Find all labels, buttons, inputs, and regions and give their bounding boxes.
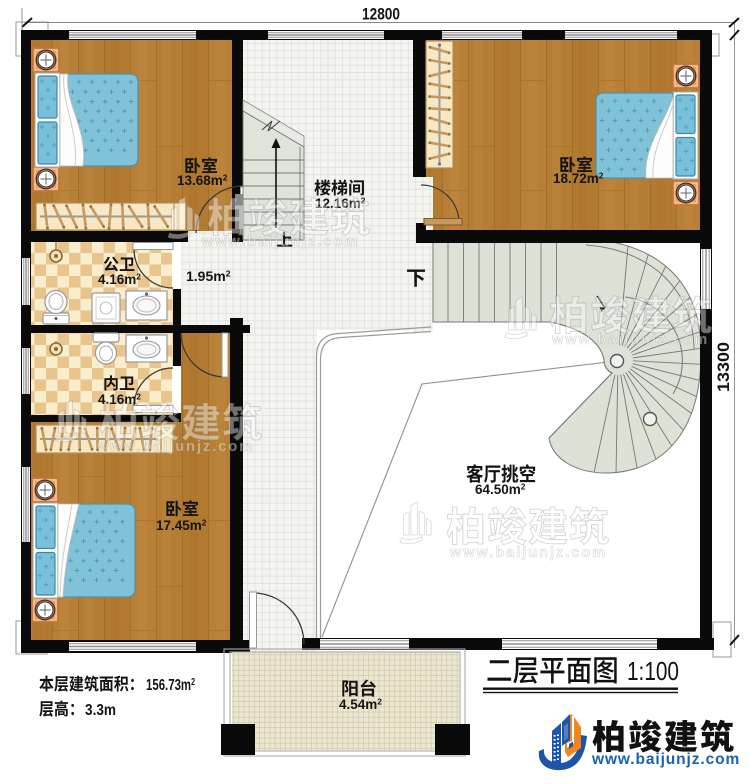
svg-text:4.16m2: 4.16m2 bbox=[98, 392, 141, 407]
svg-text:4.54m2: 4.54m2 bbox=[339, 697, 382, 712]
svg-text:17.45m2: 17.45m2 bbox=[156, 518, 207, 533]
svg-text:www.baijunjz.com: www.baijunjz.com bbox=[591, 751, 740, 768]
svg-text:13300: 13300 bbox=[715, 342, 733, 392]
svg-text:4.16m2: 4.16m2 bbox=[98, 272, 141, 287]
svg-text:1.95m2: 1.95m2 bbox=[186, 268, 231, 284]
svg-text:13.68m2: 13.68m2 bbox=[177, 173, 228, 188]
svg-text:156.73m2: 156.73m2 bbox=[146, 677, 195, 694]
svg-text:www.baijunjz.com: www.baijunjz.com bbox=[201, 234, 359, 250]
svg-text:1:100: 1:100 bbox=[627, 656, 679, 686]
svg-text:18.72m2: 18.72m2 bbox=[553, 171, 604, 186]
svg-text:12800: 12800 bbox=[362, 6, 400, 24]
svg-text:www.baijunjz.com: www.baijunjz.com bbox=[551, 332, 709, 348]
svg-text:64.50m2: 64.50m2 bbox=[475, 482, 526, 497]
svg-text:www.baijunjz.com: www.baijunjz.com bbox=[96, 439, 254, 455]
svg-text:www.baijunjz.com: www.baijunjz.com bbox=[449, 545, 607, 561]
svg-text:3.3m: 3.3m bbox=[85, 702, 116, 719]
